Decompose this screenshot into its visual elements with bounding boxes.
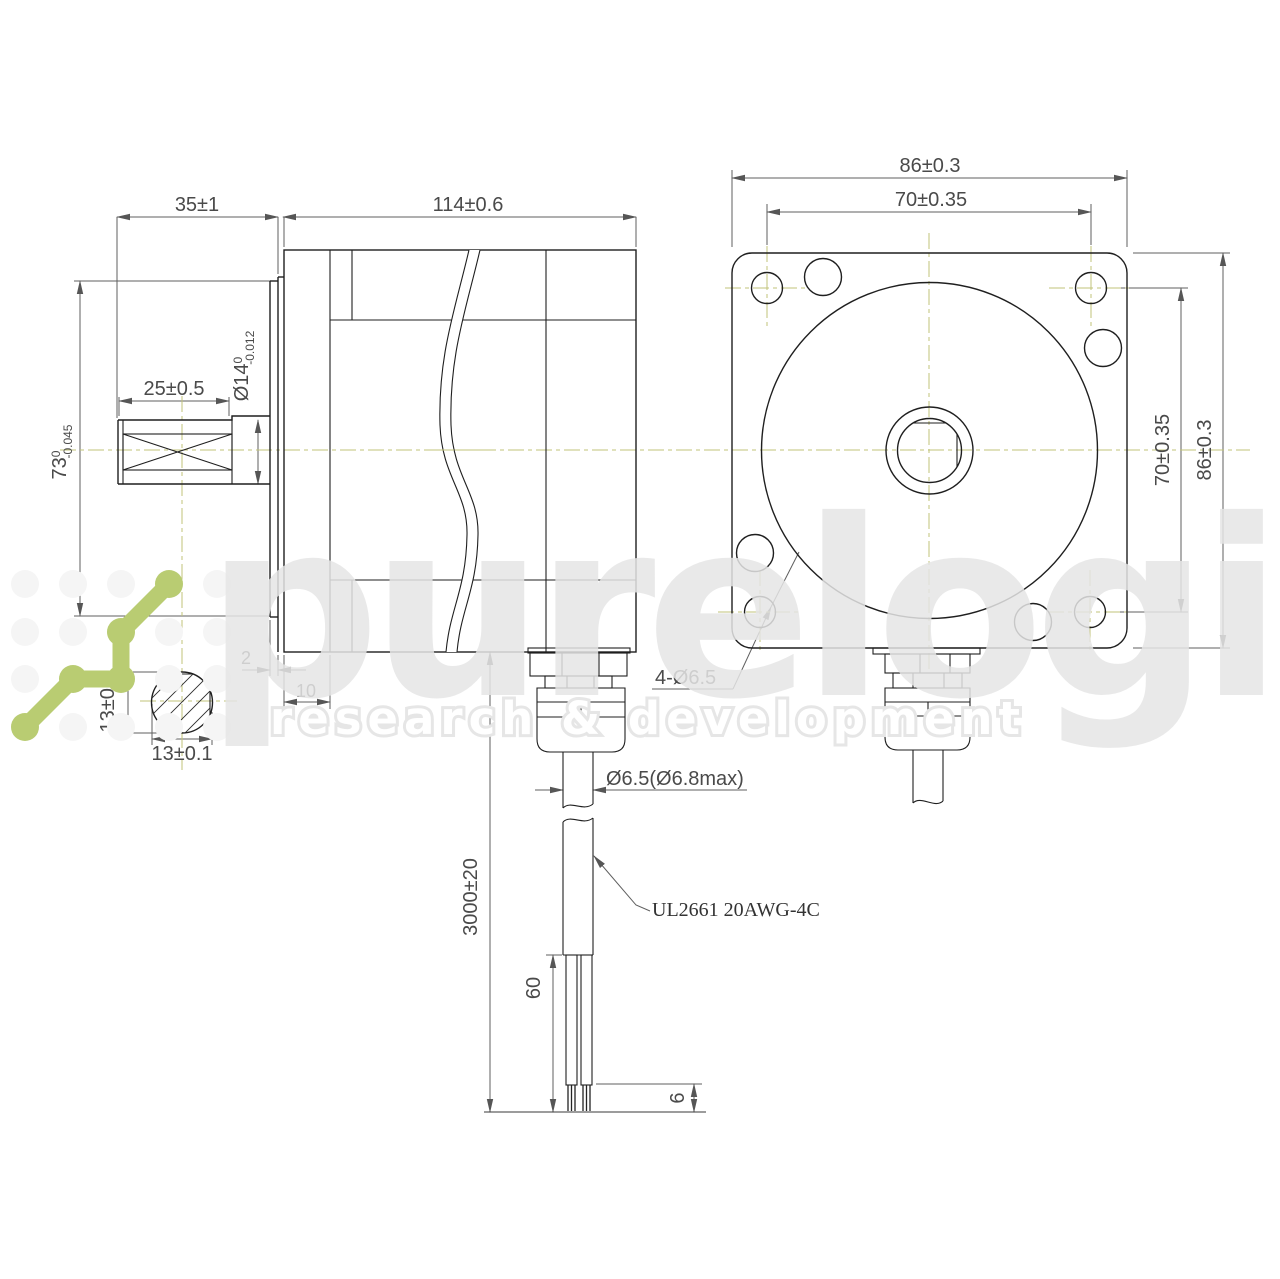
logo-green-chain — [11, 570, 183, 741]
drawing-sheet: 35±1 114±0.6 25±0.5 Ø140-0.012 730-0.045… — [0, 0, 1280, 1279]
watermark-layer: purelogic research & development — [0, 0, 1280, 1279]
watermark-tagline: research & development — [270, 692, 1026, 745]
